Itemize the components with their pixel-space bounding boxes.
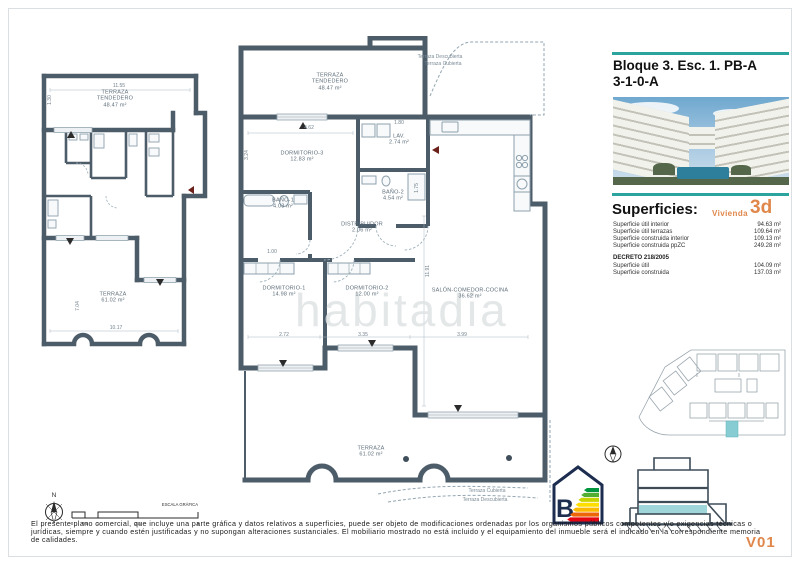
unit-highlight [726,421,738,437]
dormitorio3-label: DORMITORIO-3 12.83 m² [281,151,324,164]
vivienda-code: 3d [750,197,772,219]
superficies-row: Superficie útil interior 94.63 m² [613,222,781,229]
bano2-label: BAÑO-2 4.54 m² [382,190,404,203]
title-line2: 3-1-0-A [613,74,757,90]
teal-rule-top [612,52,789,55]
dim-272: 2.72 [279,332,289,338]
decreto-heading: DECRETO 218/2005 [613,255,669,261]
bush [653,163,675,175]
row-value: 104.09 m² [754,263,781,270]
dim-704: 7.04 [75,301,81,311]
dim-130: 1.30 [47,95,53,105]
terrace-dashed-boundaries [378,42,550,502]
section-highlight [639,505,707,514]
title-line1: Bloque 3. Esc. 1. PB-A [613,58,757,74]
row-value: 249.28 m² [754,243,781,250]
dormitorio2-label: DORMITORIO-2 12.00 m² [346,286,389,299]
small-plan-partitions [44,130,173,238]
dormitorio1-label: DORMITORIO-1 14.98 m² [263,286,306,299]
plan-sheet: TERRAZA TENDEDERO 48.47 m² TERRAZA 61.02… [0,0,800,565]
teal-rule-bottom [612,193,789,196]
small-floor-plan [36,68,211,363]
dim-180: 1.80 [394,120,404,126]
note-terraza-cubierta-top: Terraza Cubierta [425,61,462,67]
pool [677,167,729,179]
legal-disclaimer: El presente plano comercial, que incluye… [31,520,771,545]
small-terraza-label: TERRAZA 61.02 m² [99,292,126,305]
row-value: 137.03 m² [754,270,781,277]
dim-1191: 11.91 [425,265,431,277]
bano1-label: BAÑO-1 4.03 m² [272,198,294,211]
terraza-label: TERRAZA 61.02 m² [357,446,384,459]
energy-rating-icon: B [550,464,606,526]
building-photo [613,97,789,185]
row-label: Superficie útil [613,263,649,270]
row-label: Superficie construida ppZC [613,243,685,250]
lav-label: LAV. 2.74 m² [389,134,409,147]
row-label: Superficie construida [613,270,669,277]
row-value: 109.13 m² [754,236,781,243]
superficies-row: Superficie útil terrazas 109.64 m² [613,229,781,236]
dim-100: 1.00 [267,249,277,255]
north-label: N [52,492,57,499]
superficies-heading: Superficies: [612,201,698,218]
distribuidor-label: DISTRIBUIDOR 2.06 m² [341,222,383,235]
dim-175: 1.75 [414,183,420,193]
dim-462: 4.62 [304,125,314,131]
row-label: Superficie construida interior [613,236,689,243]
scale-label: ESCALA GRÁFICA [162,502,198,507]
superficies-table: Superficie útil interior 94.63 m² Superf… [613,222,781,250]
page-title: Bloque 3. Esc. 1. PB-A 3-1-0-A [613,58,757,90]
dim-1155: 11.55 [113,83,125,89]
dim-1017: 10.17 [110,325,123,331]
dim-399: 3.99 [457,332,467,338]
site-plan-outlines [639,350,785,435]
row-label: Superficie útil terrazas [613,229,672,236]
superficies-row: Superficie construida ppZC 249.28 m² [613,243,781,250]
kitchen-fixtures [430,120,530,211]
decreto-row: Superficie útil 104.09 m² [613,263,781,270]
site-plan [635,343,790,448]
small-plan-markers [66,131,194,286]
superficies-row: Superficie construida interior 109.13 m² [613,236,781,243]
row-label: Superficie útil interior [613,222,669,229]
main-floor-plan [228,36,573,516]
small-terraza-tendedero-label: TERRAZA TENDEDERO 48.47 m² [97,89,133,108]
note-terraza-cubierta-bottom: Terraza Cubierta [469,488,506,494]
bush [731,165,751,175]
note-terraza-descubierta-top: Terraza Descubierta [418,54,463,60]
small-plan-fixtures [48,134,159,228]
scale-bar [72,512,198,518]
decreto-table: Superficie útil 104.09 m² Superficie con… [613,263,781,277]
row-value: 94.63 m² [757,222,781,229]
dim-335: 3.35 [358,332,368,338]
terraza-tendedero-label: TERRAZA TENDEDERO 48.47 m² [312,72,348,91]
row-value: 109.64 m² [754,229,781,236]
note-terraza-descubierta-bottom: Terraza Descubierta [463,497,508,503]
decreto-row: Superficie construida 137.03 m² [613,270,781,277]
salon-comedor-cocina-label: SALÓN-COMEDOR-COCINA 36.62 m² [432,288,508,301]
small-plan-doors [76,163,118,208]
vivienda-label: Vivienda [712,209,748,218]
dim-324: 3.24 [244,150,250,160]
